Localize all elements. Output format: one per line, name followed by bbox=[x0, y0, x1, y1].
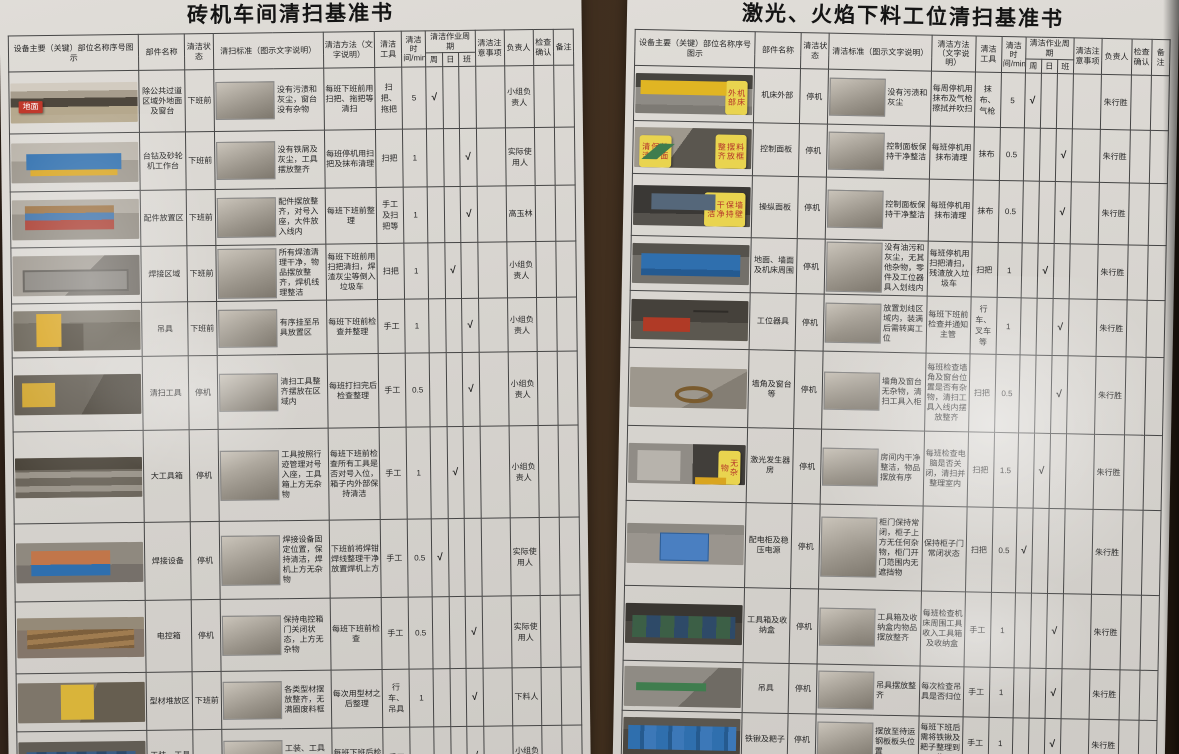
standard-photo bbox=[217, 248, 277, 299]
standard-photo bbox=[218, 309, 278, 348]
standard-wrap: 控制面板保持干净整洁 bbox=[827, 189, 927, 229]
part-name: 吊具 bbox=[742, 663, 789, 714]
cycle-week-cell bbox=[432, 597, 449, 669]
clean-state: 下班前 bbox=[193, 729, 223, 754]
cycle-week-cell bbox=[428, 299, 445, 353]
part-photo-cell bbox=[623, 585, 745, 662]
clean-state: 停机 bbox=[189, 429, 219, 521]
check-mark: √ bbox=[466, 209, 472, 220]
method-text: 每次用型材之后整理 bbox=[331, 669, 383, 728]
standard-cell: 所有焊渣清理干净，物品摆放整齐，焊机线理整洁 bbox=[216, 244, 326, 301]
cycle-day-cell bbox=[1040, 73, 1057, 128]
standard-wrap: 没有污渍和灰尘 bbox=[829, 78, 929, 118]
tool-text: 手工 bbox=[381, 597, 409, 669]
standard-text: 墙角及窗台无杂物，清扫工具入柜 bbox=[881, 376, 923, 407]
tool-header: 清洁工具 bbox=[375, 31, 402, 67]
method-text: 每班下班后需将铁锹及耙子整理到位 bbox=[918, 716, 963, 754]
cycle-day-cell bbox=[1028, 718, 1045, 754]
part-photo-cell: 地面保持清洁料框摆放整齐 bbox=[632, 120, 753, 175]
cycle-day-cell bbox=[1029, 668, 1046, 718]
cycle-week-cell bbox=[426, 129, 443, 187]
check-mark: √ bbox=[450, 265, 456, 276]
standard-wrap: 柜门保持常闭，柜子上方无任何杂物，柜门开门范围内无遮挡物 bbox=[821, 517, 921, 579]
responsible-person: 朱行胜 bbox=[1098, 182, 1129, 245]
cycle-week-cell bbox=[1017, 433, 1034, 508]
time-value: 5 bbox=[1000, 72, 1025, 127]
time-header: 清洁时间/min bbox=[401, 31, 425, 67]
resp-header: 负责人 bbox=[1101, 38, 1132, 75]
method-text: 每班下班后检查整理 bbox=[331, 727, 383, 754]
standard-wrap: 工具箱及收纳盒内物品摆放整齐 bbox=[819, 608, 919, 648]
cycle-shift-cell: √ bbox=[1052, 298, 1069, 355]
standard-cell: 没有污渍和灰尘，窗台没有杂物 bbox=[214, 68, 324, 131]
tool-text: 手工 bbox=[962, 717, 989, 754]
photo-callout-tag: 地面保持清洁 bbox=[639, 135, 671, 168]
header-row: 设备主要（关键）部位名称序号图示部件名称清洁状态清扫标准（图示文字说明）清洁方法… bbox=[8, 29, 573, 58]
tool-text: 抹布 bbox=[972, 180, 999, 242]
cycle-day-cell bbox=[1036, 298, 1053, 355]
method-text: 每班检查墙角及窗台位置是否有杂物，清扫工具入线内摆放整齐 bbox=[924, 353, 970, 432]
tool-text: 行车、吊具 bbox=[382, 669, 410, 727]
tool-text: 抹布、气枪 bbox=[974, 72, 1001, 127]
check-mark: √ bbox=[1049, 739, 1055, 750]
time-header: 清洁时间/min bbox=[1001, 36, 1026, 72]
check-mark: √ bbox=[453, 467, 459, 478]
tool-text: 手工 bbox=[964, 592, 991, 667]
part-photo-cell bbox=[622, 660, 743, 712]
tool-text: 行车、叉车等 bbox=[970, 297, 997, 354]
note-cell bbox=[1072, 74, 1101, 130]
responsible-person: 朱行胜 bbox=[1096, 299, 1127, 357]
standard-wrap: 吊具摆放整齐 bbox=[818, 670, 918, 710]
part-header: 部件名称 bbox=[139, 34, 185, 71]
clean-state: 停机 bbox=[800, 69, 829, 125]
standard-cell: 有序挂至吊具放置区 bbox=[216, 300, 326, 355]
tool-text: 扫把 bbox=[971, 242, 998, 297]
doc-title-left: 砖机车间清扫基准书 bbox=[7, 0, 573, 31]
standard-cell: 摆放至待运钢板板头位置 bbox=[815, 714, 918, 754]
state-header: 清洁状态 bbox=[801, 33, 830, 70]
cycle-day-cell bbox=[444, 186, 461, 242]
part-name: 配电柜及稳压电源 bbox=[745, 503, 793, 589]
cycle-day-header: 日 bbox=[442, 52, 459, 66]
time-value: 1 bbox=[989, 667, 1014, 717]
time-value: 1 bbox=[404, 243, 428, 299]
standard-wrap: 没有污渍和灰尘，窗台没有杂物 bbox=[215, 80, 322, 119]
time-value: 1 bbox=[403, 187, 427, 243]
remark-cell bbox=[1150, 75, 1169, 130]
document-left-brick-workshop: 砖机车间清扫基准书 设备主要（关键）部位名称序号图示部件名称清洁状态清扫标准（图… bbox=[0, 0, 591, 754]
note-cell bbox=[483, 668, 513, 726]
method-text: 每班下班前检查所有工具是否对号入位，箱子内外部保持清洁 bbox=[328, 427, 381, 520]
part-photo bbox=[626, 523, 744, 565]
check-mark: √ bbox=[1060, 207, 1066, 218]
standard-photo bbox=[217, 197, 277, 238]
responsible-person: 实际使用人 bbox=[505, 128, 535, 186]
remark-cell bbox=[554, 65, 575, 127]
confirm-cell bbox=[1123, 435, 1144, 510]
responsible-person: 朱行胜 bbox=[1088, 719, 1119, 754]
cycle-shift-cell: √ bbox=[467, 726, 484, 754]
table-row: 台钻及砂轮机工作台下班前没有铁屑及灰尘，工具摆放整齐每班停机用扫把及抹布清理扫把… bbox=[9, 127, 575, 192]
time-value: 0.5 bbox=[405, 353, 430, 427]
table-row: 大工具箱停机工具按照行迹管理对号入座，工具箱上方无杂物每班下班前检查所有工具是否… bbox=[13, 425, 579, 524]
cycle-day-cell bbox=[1030, 593, 1047, 668]
standard-text: 柜门保持常闭，柜子上方无任何杂物，柜门开门范围内无遮挡物 bbox=[878, 518, 921, 579]
method-text: 每班检查机床周围工具收入工具箱及收纳盒 bbox=[920, 591, 966, 667]
standard-photo bbox=[827, 189, 883, 228]
remark-cell bbox=[555, 185, 575, 241]
clean-state: 停机 bbox=[795, 294, 824, 352]
responsible-person: 小组负责人 bbox=[506, 242, 536, 298]
part-name: 焊接区域 bbox=[141, 246, 187, 303]
part-photo-cell bbox=[15, 600, 146, 674]
cycle-week-cell: √ bbox=[431, 519, 448, 597]
time-value: 1 bbox=[409, 669, 434, 727]
part-photo: 墙壁保持干净整洁 bbox=[633, 184, 751, 226]
tool-text: 手工及扫把等 bbox=[376, 187, 404, 243]
responsible-person: 朱行胜 bbox=[1091, 509, 1123, 595]
tool-text: 手工 bbox=[378, 353, 406, 427]
cycle-shift-cell: √ bbox=[1045, 668, 1062, 718]
confirm-cell bbox=[1119, 670, 1140, 720]
responsible-person: 实际使用人 bbox=[510, 518, 540, 596]
note-cell bbox=[1062, 594, 1091, 670]
standard-text: 配件摆放整齐，对号入座，大件放入线内 bbox=[278, 196, 324, 237]
remark-cell bbox=[557, 297, 577, 351]
part-photo-cell bbox=[629, 290, 750, 349]
clean-state: 停机 bbox=[188, 355, 218, 429]
cycle-day-cell bbox=[446, 352, 463, 426]
part-name: 激光发生器房 bbox=[746, 428, 794, 504]
remark-cell bbox=[1139, 670, 1158, 720]
clean-state: 停机 bbox=[788, 664, 817, 715]
cycle-shift-header: 班 bbox=[1057, 60, 1073, 74]
time-value: 1 bbox=[997, 242, 1022, 297]
standard-cell: 柜门保持常闭，柜子上方无任何杂物，柜门开门范围内无遮挡物 bbox=[819, 504, 923, 591]
standard-photo bbox=[223, 740, 283, 754]
standard-wrap: 摆放至待运钢板板头位置 bbox=[817, 721, 917, 754]
standard-wrap: 控制面板保持干净整洁 bbox=[828, 132, 928, 172]
clean-state: 下班前 bbox=[186, 189, 216, 245]
remark-header: 备注 bbox=[553, 29, 573, 65]
check-mark: √ bbox=[1039, 465, 1045, 476]
note-cell bbox=[483, 726, 513, 754]
note-cell bbox=[477, 186, 507, 242]
cycle-week-cell bbox=[429, 353, 446, 427]
standard-photo bbox=[817, 721, 873, 754]
method-header: 清洁方法（文字说明） bbox=[323, 32, 375, 69]
cycle-week-header: 周 bbox=[1025, 59, 1041, 73]
standard-text: 保持电控箱门关闭状态，上方无杂物 bbox=[283, 614, 329, 655]
method-text: 每班下班前检查 bbox=[330, 597, 383, 670]
standard-photo bbox=[825, 303, 881, 344]
responsible-person: 小组负责人 bbox=[509, 426, 539, 518]
machine-logo-label: EX3000 bbox=[699, 260, 741, 279]
standard-cell: 清扫工具整齐摆放在区域内 bbox=[217, 354, 328, 429]
table-row: 工位器具停机放置划线区域内，装满后需转离工位每班下班前检查并通知主管行车、叉车等… bbox=[629, 290, 1165, 357]
responsible-person: 高玉林 bbox=[506, 186, 536, 242]
standard-wrap: 没有铁屑及灰尘，工具摆放整齐 bbox=[216, 140, 323, 179]
cycle-week-cell bbox=[1018, 355, 1036, 433]
note-cell bbox=[1063, 509, 1093, 595]
standard-photo bbox=[819, 608, 875, 647]
standard-cell: 保持电控箱门关闭状态，上方无杂物 bbox=[220, 598, 331, 671]
note-cell bbox=[477, 242, 507, 298]
part-photo-cell bbox=[11, 246, 142, 304]
part-photo bbox=[11, 141, 139, 183]
standard-photo bbox=[818, 670, 874, 709]
standard-text: 没有污渍和灰尘，窗台没有杂物 bbox=[277, 84, 322, 115]
time-value: 5 bbox=[402, 67, 427, 129]
table-row: 清扫工具停机清扫工具整齐摆放在区域内每班打扫完后检查整理手工0.5√小组负责人 bbox=[12, 351, 578, 432]
part-photo-cell bbox=[17, 730, 148, 754]
remark-cell bbox=[1147, 245, 1166, 300]
standard-cell: 各类型材摆放整齐，无满圈废料框 bbox=[221, 670, 331, 729]
part-photo-cell bbox=[10, 190, 141, 248]
clean-state: 下班前 bbox=[192, 671, 222, 729]
responsible-person: 朱行胜 bbox=[1090, 594, 1121, 670]
part-photo-cell: 无杂物 bbox=[626, 425, 748, 502]
note-header: 清洁注意事项 bbox=[475, 30, 504, 66]
standard-wrap: 墙角及窗台无杂物，清扫工具入柜 bbox=[824, 371, 924, 411]
standard-wrap: 工装、工具摆放整齐，对号入座 bbox=[223, 739, 330, 754]
note-cell bbox=[481, 518, 511, 596]
part-photo bbox=[12, 254, 140, 296]
confirm-cell bbox=[534, 127, 555, 185]
time-value: 1 bbox=[990, 592, 1015, 667]
part-photo: 无杂物 bbox=[628, 443, 746, 485]
standard-wrap: 有序挂至吊具放置区 bbox=[218, 308, 325, 347]
part-photo-cell bbox=[16, 672, 147, 732]
part-name: 除公共过道区域外地面及窗台 bbox=[139, 70, 185, 133]
standard-cell: 放置划线区域内，装满后需转离工位 bbox=[823, 294, 926, 353]
time-value: 1 bbox=[996, 297, 1021, 354]
part-photo: EX3000 bbox=[632, 243, 750, 285]
cycle-shift-cell bbox=[1056, 74, 1073, 129]
cycle-shift-cell bbox=[1047, 508, 1065, 593]
part-photo-cell: EX3000 bbox=[630, 235, 751, 292]
remark-cell bbox=[1149, 130, 1168, 183]
standard-wrap: 没有油污和灰尘，无其他杂物，零件及工位器具入划线内 bbox=[826, 242, 926, 294]
cycle-day-cell bbox=[445, 298, 462, 352]
cycle-shift-cell bbox=[459, 66, 476, 128]
standard-wrap: 焊接设备固定位置，保持清洁，焊机上方无杂物 bbox=[221, 534, 328, 585]
standard-photo bbox=[215, 81, 275, 120]
clean-state: 停机 bbox=[787, 713, 816, 754]
cycle-header: 清洁作业周期 bbox=[425, 30, 475, 53]
clean-state: 停机 bbox=[794, 351, 824, 430]
remark-cell bbox=[557, 351, 578, 425]
part-name: 工位器具 bbox=[749, 293, 796, 351]
table-row: 墙壁保持干净整洁操纵面板停机控制面板保持干净整洁每班停机用抹布清理抹布0.5√朱… bbox=[631, 173, 1167, 245]
method-text: 每班停机用抹布清理 bbox=[929, 126, 974, 180]
standard-text: 放置划线区域内，装满后需转离工位 bbox=[883, 304, 925, 345]
time-value: 1.5 bbox=[993, 432, 1018, 507]
tool-text: 手工 bbox=[963, 667, 990, 717]
check-mark: √ bbox=[1030, 95, 1036, 106]
note-header: 清洁注意事项 bbox=[1073, 38, 1102, 75]
confirm-cell bbox=[1126, 300, 1147, 357]
diagram-header: 设备主要（关键）部位名称序号图示 bbox=[8, 34, 139, 72]
standard-photo bbox=[216, 141, 276, 180]
cycle-day-cell: √ bbox=[1033, 433, 1050, 508]
confirm-cell bbox=[533, 65, 554, 127]
cycle-week-cell: √ bbox=[426, 67, 443, 129]
standard-wrap: 工具按照行迹管理对号入座，工具箱上方无杂物 bbox=[220, 449, 327, 500]
tool-text: 手工 bbox=[379, 427, 407, 519]
cycle-week-cell bbox=[1022, 181, 1039, 243]
check-mark: √ bbox=[465, 152, 471, 163]
confirm-cell bbox=[535, 185, 556, 241]
part-photo-cell bbox=[14, 522, 145, 602]
standard-text: 控制面板保持干净整洁 bbox=[886, 142, 928, 163]
photographed-wall-documents: 砖机车间清扫基准书 设备主要（关键）部位名称序号图示部件名称清洁状态清扫标准（图… bbox=[0, 0, 1179, 754]
cycle-shift-cell: √ bbox=[1050, 355, 1068, 433]
standard-cell: 焊接设备固定位置，保持清洁，焊机上方无杂物 bbox=[219, 520, 330, 599]
part-photo-cell bbox=[625, 500, 747, 587]
method-text: 每班下班前检查并整理 bbox=[326, 299, 378, 354]
standard-photo bbox=[829, 78, 885, 117]
responsible-person: 下料人 bbox=[512, 668, 542, 726]
resp-header: 负责人 bbox=[504, 30, 533, 66]
cycle-shift-cell bbox=[1053, 244, 1070, 299]
cycle-week-cell bbox=[1013, 668, 1030, 718]
diagram-header: 设备主要（关键）部位名称序号图示 bbox=[635, 29, 756, 67]
cycle-shift-header: 班 bbox=[459, 52, 476, 66]
clean-state: 停机 bbox=[796, 239, 825, 295]
part-photo-cell bbox=[12, 356, 143, 432]
remark-cell bbox=[1140, 595, 1160, 670]
part-photo-cell bbox=[13, 430, 144, 524]
tool-text: 扫把 bbox=[965, 507, 993, 592]
note-cell bbox=[480, 426, 510, 518]
part-photo bbox=[13, 309, 141, 351]
cycle-day-cell bbox=[443, 128, 460, 186]
method-header: 清洁方法（文字说明） bbox=[931, 35, 976, 72]
standard-cell: 吊具摆放整齐 bbox=[816, 664, 919, 716]
time-value: 1 bbox=[410, 727, 435, 754]
standard-header: 清洁标准（图示文字说明） bbox=[829, 33, 932, 71]
note-cell bbox=[479, 352, 509, 426]
cycle-day-header: 日 bbox=[1041, 59, 1057, 73]
responsible-person: 小组负责人 bbox=[512, 726, 542, 754]
standard-text: 房间内干净整洁，物品摆放有序 bbox=[880, 453, 922, 484]
standard-text: 焊接设备固定位置，保持清洁，焊机上方无杂物 bbox=[282, 534, 328, 585]
part-photo bbox=[629, 366, 747, 408]
responsible-person: 朱行胜 bbox=[1089, 669, 1120, 720]
cycle-week-cell bbox=[1023, 128, 1040, 181]
standard-wrap: 所有焊渣清理干净，物品摆放整齐，焊机线理整洁 bbox=[217, 247, 324, 298]
part-photo: 地面保持清洁料框摆放整齐 bbox=[634, 127, 752, 169]
standard-text: 工具箱及收纳盒内物品摆放整齐 bbox=[877, 613, 919, 644]
cycle-day-cell: √ bbox=[1037, 243, 1054, 298]
clean-state: 停机 bbox=[789, 589, 818, 665]
table-row: 墙角及窗台等停机墙角及窗台无杂物，清扫工具入柜每班检查墙角及窗台位置是否有杂物，… bbox=[628, 347, 1164, 435]
standard-wrap: 各类型材摆放整齐，无满圈废料框 bbox=[223, 680, 330, 719]
remark-cell bbox=[555, 127, 575, 185]
part-header: 部件名称 bbox=[755, 32, 802, 69]
standard-photo bbox=[821, 517, 878, 578]
time-value: 1 bbox=[403, 129, 428, 187]
standard-photo bbox=[219, 373, 279, 412]
remark-cell bbox=[558, 425, 579, 517]
confirm-cell bbox=[1121, 510, 1143, 595]
part-name: 墙角及窗台等 bbox=[748, 350, 796, 429]
cycle-week-cell: √ bbox=[1024, 73, 1041, 128]
standard-wrap: 清扫工具整齐摆放在区域内 bbox=[219, 372, 326, 411]
part-name: 吊具 bbox=[142, 302, 188, 357]
cleaning-standard-table-right: 设备主要（关键）部位名称序号图示部件名称清洁状态清洁标准（图示文字说明）清洁方法… bbox=[621, 29, 1171, 754]
part-photo bbox=[17, 616, 145, 658]
standard-cell: 工装、工具摆放整齐，对号入座 bbox=[222, 728, 332, 754]
clean-state: 下班前 bbox=[187, 245, 217, 301]
standard-photo bbox=[222, 615, 282, 656]
standard-wrap: 保持电控箱门关闭状态，上方无杂物 bbox=[222, 614, 329, 655]
cycle-week-cell bbox=[428, 243, 445, 299]
cycle-week-cell bbox=[433, 669, 450, 727]
table-row: 机床外部机床外部停机没有污渍和灰尘每周停机用抹布及气枪擦拭并吹扫抹布、气枪5√朱… bbox=[633, 65, 1169, 130]
responsible-person: 朱行胜 bbox=[1094, 356, 1126, 435]
clean-state: 停机 bbox=[191, 599, 221, 671]
part-name: 配件放置区 bbox=[141, 190, 187, 247]
confirm-header: 检查确认 bbox=[1131, 39, 1152, 75]
standard-text: 各类型材摆放整齐，无满圈废料框 bbox=[284, 684, 329, 715]
tool-text: 扫把 bbox=[376, 129, 404, 187]
cycle-shift-cell: √ bbox=[1046, 593, 1063, 668]
standard-photo bbox=[220, 450, 280, 501]
responsible-person: 朱行胜 bbox=[1093, 434, 1124, 510]
check-mark: √ bbox=[1052, 626, 1058, 637]
confirm-cell bbox=[540, 595, 562, 667]
standard-photo bbox=[822, 448, 878, 487]
clean-state: 停机 bbox=[190, 521, 220, 599]
table-row: 吊具下班前有序挂至吊具放置区每班下班前检查并整理手工1√小组负责人 bbox=[12, 297, 578, 358]
part-name: 地面、墙面及机床周围 bbox=[750, 238, 797, 294]
remark-header: 备注 bbox=[1151, 39, 1170, 75]
standard-text: 吊具摆放整齐 bbox=[876, 680, 918, 701]
clean-state: 停机 bbox=[799, 124, 828, 178]
header-row: 设备主要（关键）部位名称序号图示部件名称清洁状态清洁标准（图示文字说明）清洁方法… bbox=[635, 29, 1170, 61]
photo-callout-tag: 机床外部 bbox=[725, 81, 748, 115]
standard-text: 有序挂至吊具放置区 bbox=[280, 317, 325, 338]
photo-callout-tag: 料框摆放整齐 bbox=[715, 134, 747, 169]
responsible-person: 朱行胜 bbox=[1099, 129, 1130, 183]
time-value: 0.5 bbox=[999, 127, 1024, 180]
tool-text: 手工 bbox=[383, 727, 411, 754]
confirm-cell bbox=[539, 517, 561, 595]
note-cell bbox=[475, 66, 505, 128]
cycle-day-cell bbox=[448, 518, 465, 596]
part-name: 铁锹及耙子 bbox=[741, 713, 788, 754]
confirm-cell bbox=[1129, 130, 1150, 183]
part-photo bbox=[18, 740, 146, 754]
responsible-person: 小组负责人 bbox=[507, 298, 537, 352]
responsible-person: 小组负责人 bbox=[508, 352, 538, 426]
table-row: 电控箱停机保持电控箱门关闭状态，上方无杂物每班下班前检查手工0.5√实际使用人 bbox=[15, 595, 581, 674]
cycle-day-cell bbox=[450, 668, 467, 726]
part-name: 焊接设备 bbox=[145, 522, 191, 601]
tool-text: 手工 bbox=[378, 299, 406, 353]
check-mark: √ bbox=[468, 384, 474, 395]
part-photo: 地面 bbox=[10, 81, 138, 123]
standard-text: 所有焊渣清理干净，物品摆放整齐，焊机线理整洁 bbox=[279, 247, 325, 298]
confirm-cell bbox=[1118, 720, 1139, 754]
part-name: 电控箱 bbox=[146, 600, 192, 673]
note-cell bbox=[1066, 356, 1096, 435]
table-row: 工具箱及收纳盒停机工具箱及收纳盒内物品摆放整齐每班检查机床周围工具收入工具箱及收… bbox=[623, 585, 1159, 670]
remark-cell bbox=[1148, 183, 1167, 245]
